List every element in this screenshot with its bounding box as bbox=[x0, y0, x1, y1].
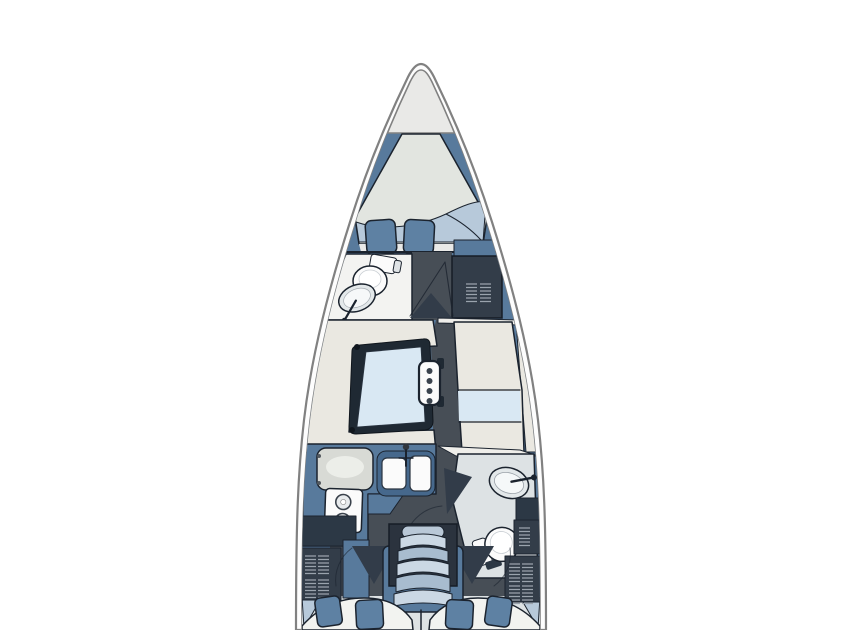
starboard-bench bbox=[454, 322, 524, 452]
worktop-highlight bbox=[326, 456, 364, 478]
worktop-hinge bbox=[317, 454, 321, 458]
table-clamp bbox=[349, 427, 355, 433]
table-clamp bbox=[354, 344, 360, 350]
galley-sink-right bbox=[410, 456, 431, 491]
starboard-berth-pillow bbox=[445, 599, 473, 629]
nav-table bbox=[458, 391, 521, 421]
boat-floorplan bbox=[0, 0, 841, 630]
galley-sink-left bbox=[382, 458, 406, 489]
starboard-berth-pillow bbox=[484, 595, 513, 627]
starboard-locker-a bbox=[514, 520, 540, 554]
v-berth-pillow-right bbox=[403, 219, 435, 255]
worktop-hinge bbox=[317, 481, 321, 485]
saloon bbox=[306, 320, 543, 452]
yacht-floorplan-page bbox=[0, 0, 841, 630]
starboard-locker-b bbox=[505, 556, 541, 602]
saloon-table-top bbox=[357, 347, 425, 427]
port-berth-pillow bbox=[355, 599, 383, 629]
companionway bbox=[383, 524, 463, 612]
port-berth-pillow bbox=[314, 595, 343, 627]
v-berth-pillow-left bbox=[365, 219, 397, 255]
starboard-cabinet bbox=[516, 498, 540, 522]
mast-post bbox=[419, 358, 444, 407]
